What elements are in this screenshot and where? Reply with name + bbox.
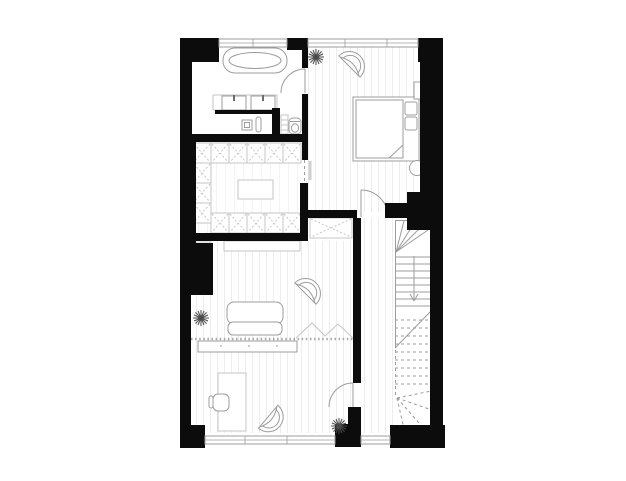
wardrobe-cell bbox=[211, 213, 229, 233]
sofa-back bbox=[227, 302, 283, 324]
wall-left-lower bbox=[180, 295, 191, 433]
wall-bath-bedroom-a bbox=[302, 50, 308, 68]
vanity-counter-front bbox=[215, 110, 277, 114]
wall-bedroom-se-pier bbox=[407, 192, 443, 230]
wardrobe-cell bbox=[265, 213, 283, 233]
wardrobe-cell bbox=[283, 213, 301, 233]
bathtub bbox=[223, 48, 287, 73]
shelf-unit bbox=[281, 115, 288, 134]
wall-left-upper bbox=[180, 38, 192, 144]
wall-bottom-left-corner bbox=[180, 425, 205, 448]
wall-left-living-pier bbox=[180, 243, 213, 295]
toilet bbox=[289, 118, 301, 134]
wall-bath-bedroom-b bbox=[302, 94, 308, 160]
radiator bbox=[256, 117, 261, 132]
wall-bathroom-south bbox=[183, 134, 308, 142]
window-bottom-stairhall bbox=[361, 436, 390, 444]
window-top-bathroom bbox=[219, 39, 287, 47]
floor-drain-inner bbox=[245, 123, 250, 128]
wall-closet-west bbox=[180, 142, 196, 243]
bathroom-fixtures bbox=[213, 48, 301, 134]
tv-bench bbox=[224, 241, 300, 251]
bathroom-door bbox=[281, 69, 305, 93]
stair-flight-area bbox=[394, 218, 432, 433]
staircase bbox=[394, 218, 432, 433]
stair-hall-floor bbox=[361, 218, 394, 433]
wardrobe-cell bbox=[211, 143, 229, 163]
bed-mattress bbox=[356, 100, 403, 158]
wall-bottom-right-corner bbox=[390, 425, 445, 448]
wall-closet-south bbox=[183, 233, 307, 241]
wall-top-pier bbox=[287, 38, 308, 50]
wall-closet-east bbox=[300, 183, 308, 241]
wardrobe-cell bbox=[229, 213, 247, 233]
wardrobe-cell bbox=[229, 143, 247, 163]
hall-wardrobe bbox=[310, 218, 352, 238]
sofa-seat bbox=[228, 322, 282, 335]
wall-right-stairwell bbox=[430, 230, 443, 433]
window-bottom-living bbox=[205, 436, 335, 444]
sideboard bbox=[198, 341, 297, 352]
wall-stairhall-west bbox=[353, 218, 361, 383]
closet-island bbox=[238, 180, 273, 199]
wall-bedroom-south-jamb bbox=[385, 203, 407, 218]
wardrobe-cell bbox=[247, 213, 265, 233]
floor-plan-page bbox=[0, 0, 626, 481]
floor-plan-drawing bbox=[0, 0, 626, 481]
wall-right-bedroom bbox=[420, 38, 443, 193]
window-top-bedroom bbox=[308, 39, 418, 47]
wall-bedroom-south bbox=[300, 210, 357, 218]
floor-drain bbox=[242, 120, 252, 130]
wardrobe-cell bbox=[283, 143, 301, 163]
bed-pillow-2 bbox=[405, 117, 417, 130]
wardrobe-cell bbox=[265, 143, 283, 163]
wardrobe-cell bbox=[247, 143, 265, 163]
bed-pillow-1 bbox=[405, 102, 417, 115]
